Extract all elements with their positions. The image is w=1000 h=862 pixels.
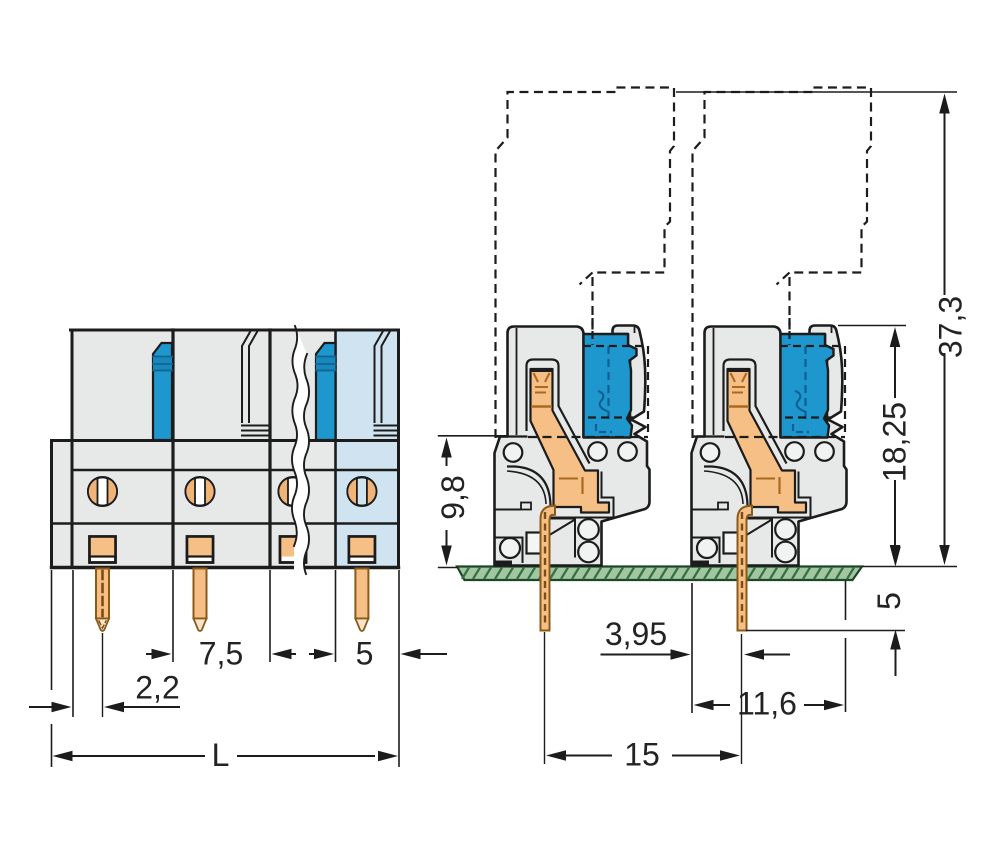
svg-text:11,6: 11,6 bbox=[737, 686, 797, 722]
svg-text:5: 5 bbox=[871, 592, 907, 610]
svg-text:15: 15 bbox=[624, 737, 660, 773]
svg-text:37,3: 37,3 bbox=[933, 296, 969, 358]
svg-text:L: L bbox=[212, 737, 230, 773]
svg-text:18,25: 18,25 bbox=[877, 402, 913, 482]
svg-text:5: 5 bbox=[356, 636, 374, 672]
svg-text:3,95: 3,95 bbox=[605, 616, 667, 652]
svg-text:2,2: 2,2 bbox=[135, 670, 179, 706]
svg-text:7,5: 7,5 bbox=[199, 636, 243, 672]
svg-text:9,8: 9,8 bbox=[435, 475, 471, 519]
